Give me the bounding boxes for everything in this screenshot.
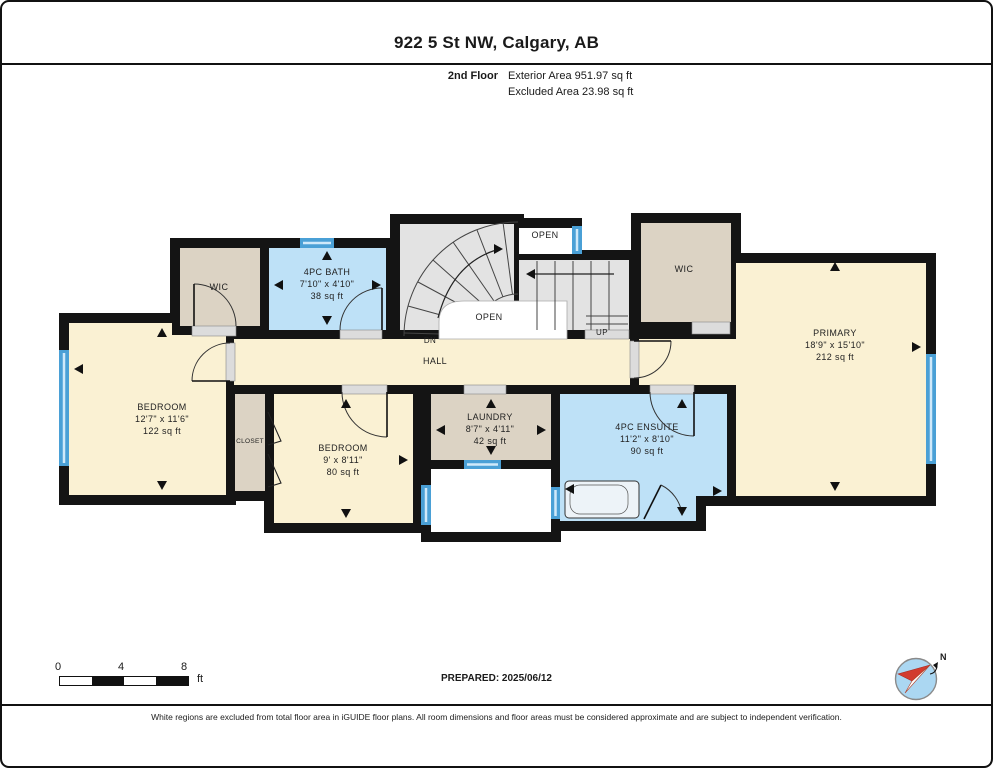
room-label-wic-left: WIC xyxy=(210,281,229,293)
room-label-open-top: OPEN xyxy=(531,229,558,241)
room-label-wic-right: WIC xyxy=(675,263,694,275)
floorplan-page: 922 5 St NW, Calgary, AB 2nd Floor Exter… xyxy=(0,0,993,768)
room-label-bedroom2: BEDROOM 9' x 8'11" 80 sq ft xyxy=(318,442,367,478)
room-label-laundry: LAUNDRY 8'7" x 4'11" 42 sq ft xyxy=(466,411,515,447)
scale-start: 0 xyxy=(55,661,61,673)
room-label-open-stair: OPEN xyxy=(475,311,502,323)
room-fills-layer xyxy=(69,223,926,532)
room-label-hall: HALL xyxy=(423,355,447,367)
compass-north-label: N xyxy=(940,652,947,662)
room-label-bath: 4PC BATH 7'10" x 4'10" 38 sq ft xyxy=(300,266,355,302)
stairs-up-label: UP xyxy=(596,327,608,339)
room-label-bedroom1: BEDROOM 12'7" x 11'6" 122 sq ft xyxy=(135,401,189,437)
stairs-down-label: DN xyxy=(424,335,436,347)
room-label-primary: PRIMARY 18'9" x 15'10" 212 sq ft xyxy=(805,327,865,363)
disclaimer-text: White regions are excluded from total fl… xyxy=(2,712,991,722)
bathtub-icon xyxy=(565,481,639,518)
prepared-date: PREPARED: 2025/06/12 xyxy=(2,673,991,684)
floor-plan xyxy=(2,2,993,768)
room-label-closet: CLOSET xyxy=(236,436,264,448)
room-label-ensuite: 4PC ENSUITE 11'2" x 8'10" 90 sq ft xyxy=(615,421,678,457)
open-to-below-area xyxy=(439,301,567,339)
scale-mid: 4 xyxy=(118,661,124,673)
scale-end: 8 xyxy=(181,661,187,673)
